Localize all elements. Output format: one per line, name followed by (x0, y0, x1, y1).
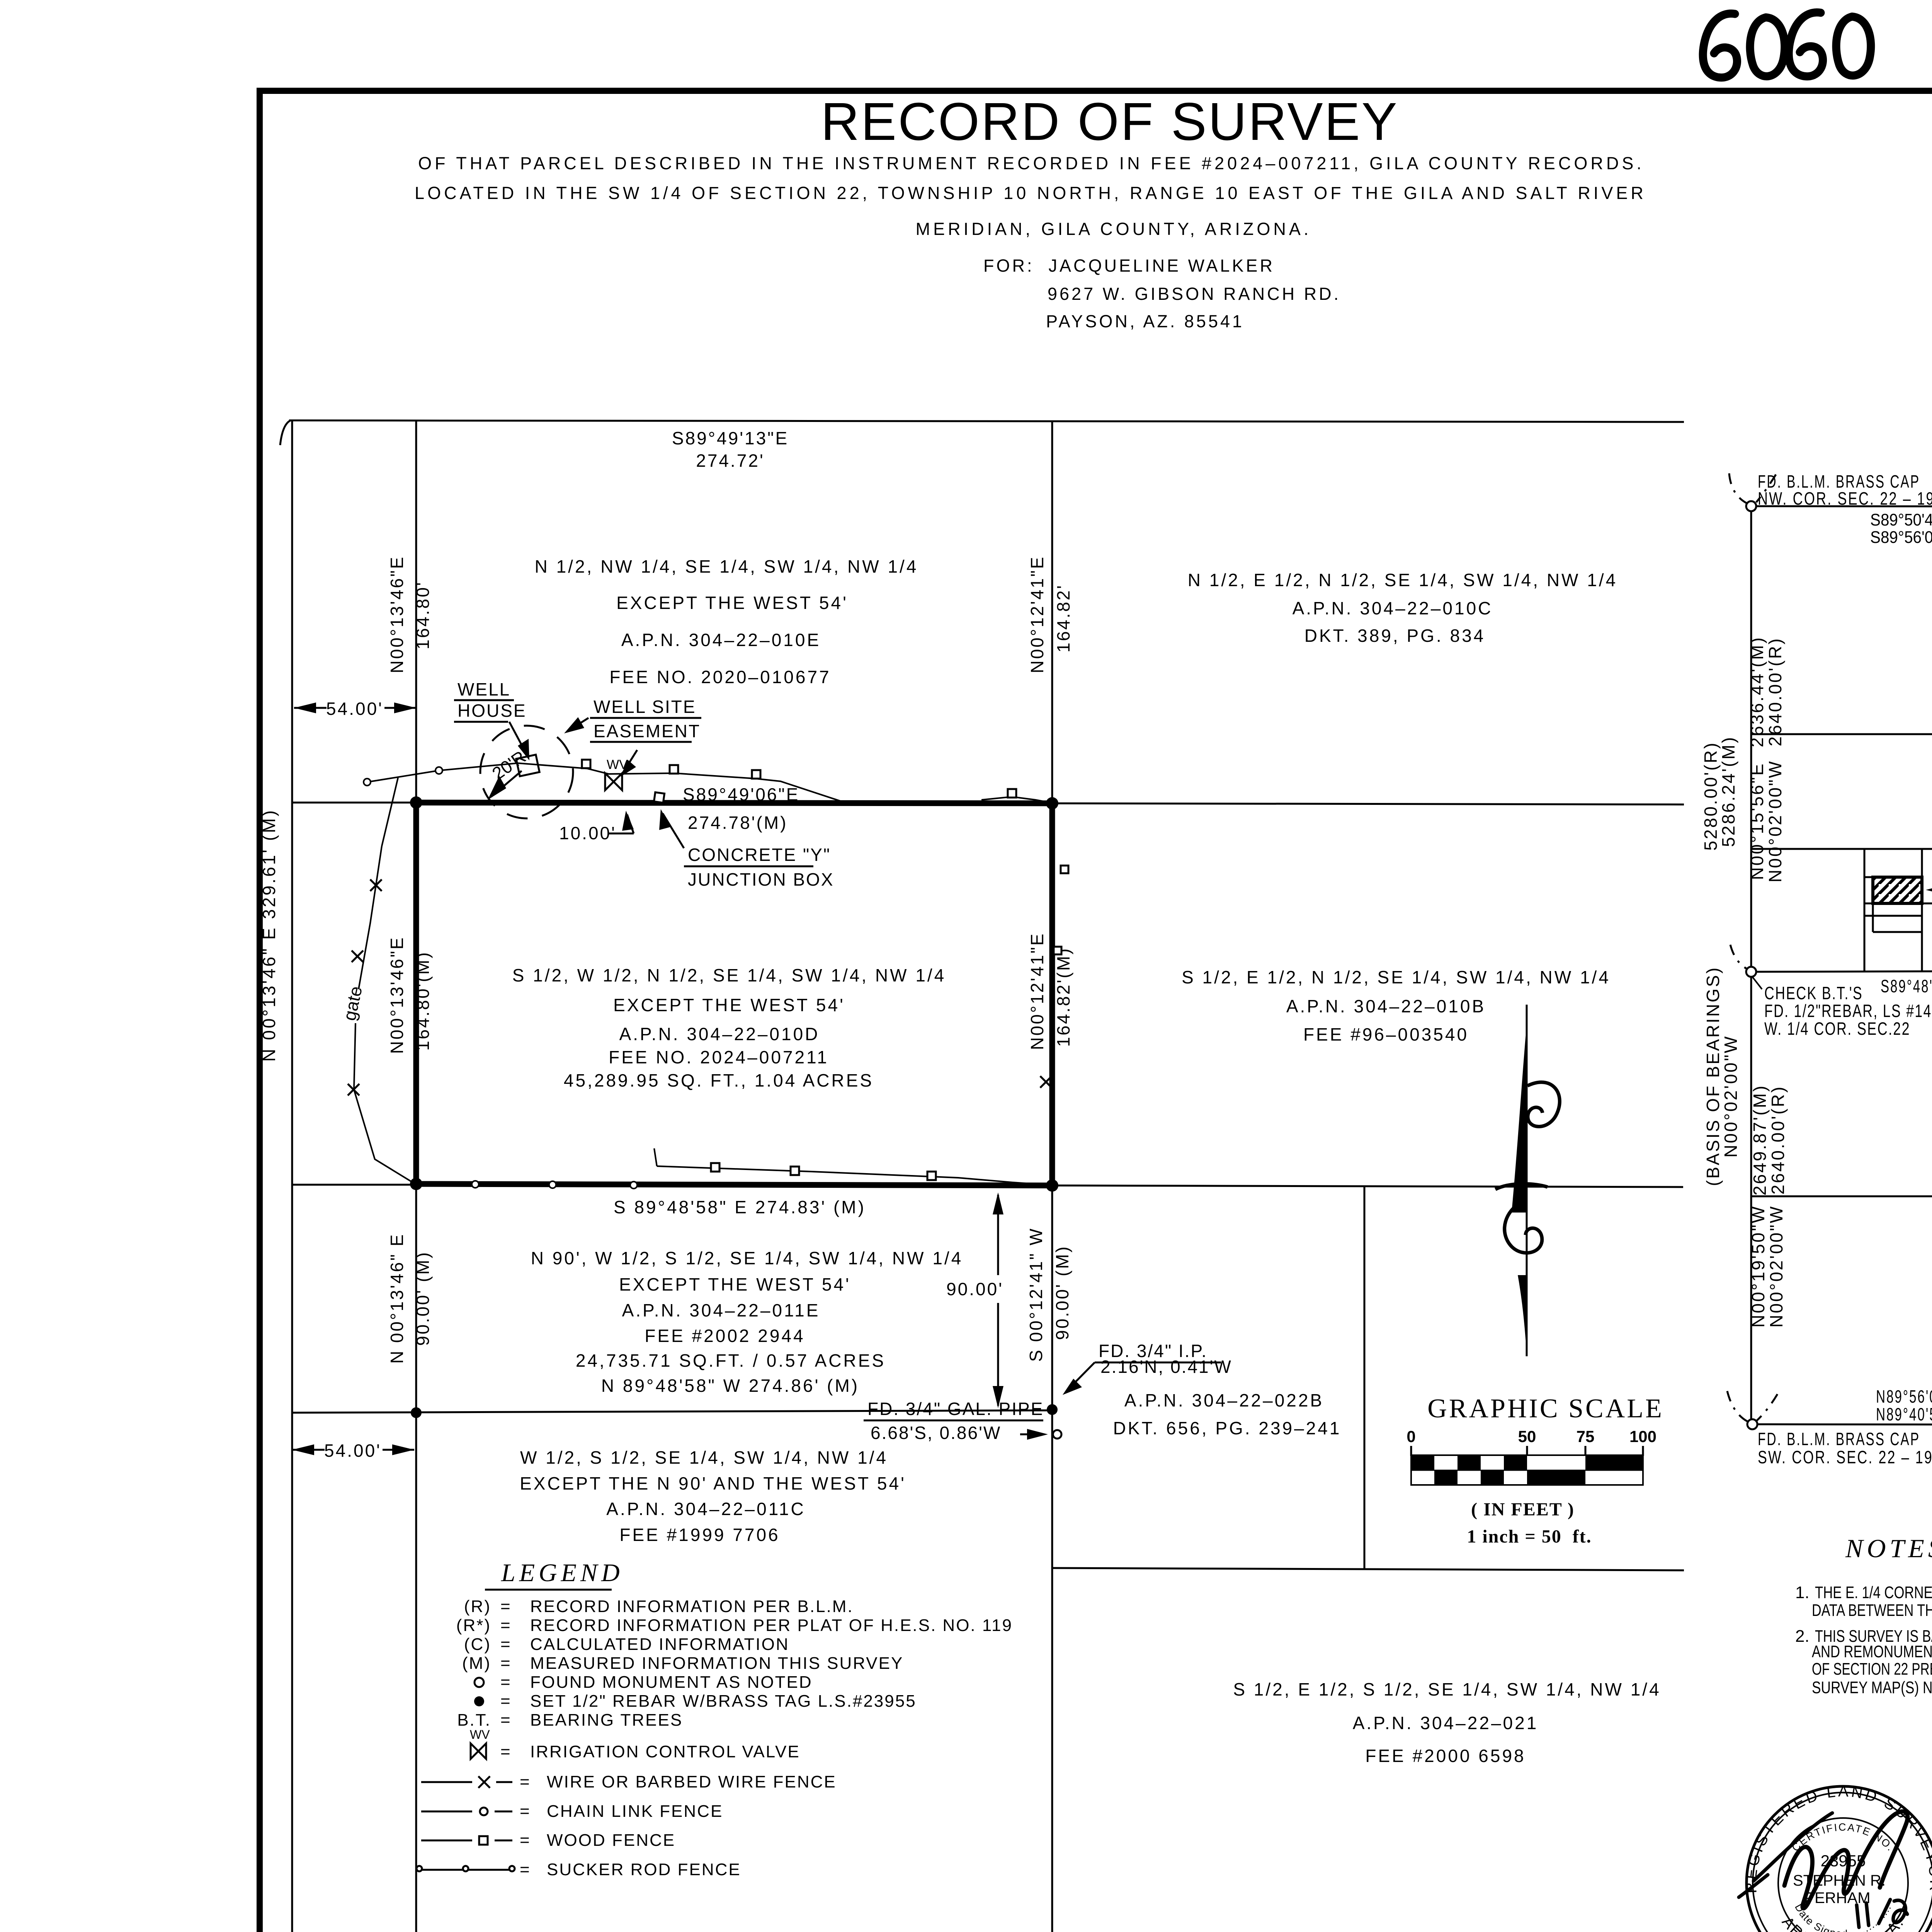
svg-text:SURVEY MAP(S) NO. 1518 & 1526: SURVEY MAP(S) NO. 1518 & 1526 BY EVART D… (1812, 1678, 1932, 1697)
svg-text:=: = (500, 1673, 512, 1692)
svg-text:N 00°13'46" E: N 00°13'46" E (387, 1233, 407, 1364)
svg-text:S89°49'06"E: S89°49'06"E (683, 784, 799, 804)
svg-text:WELL: WELL (457, 679, 510, 699)
svg-text:RECORD INFORMATION PER PLAT OF: RECORD INFORMATION PER PLAT OF H.E.S. NO… (530, 1616, 1013, 1635)
svg-text:S89°48'42"E: S89°48'42"E (1881, 976, 1932, 996)
svg-text:S 00°12'41" W: S 00°12'41" W (1026, 1227, 1046, 1362)
svg-text:54.00': 54.00' (324, 1440, 381, 1461)
svg-text:5280.00'(R): 5280.00'(R) (1701, 742, 1721, 851)
svg-text:OF THAT PARCEL DESCRIBED IN TH: OF THAT PARCEL DESCRIBED IN THE INSTRUME… (418, 153, 1645, 173)
svg-text:S 1/2, E 1/2, N 1/2, SE 1/4, S: S 1/2, E 1/2, N 1/2, SE 1/4, SW 1/4, NW … (1182, 967, 1611, 987)
svg-text:90.00' (M): 90.00' (M) (413, 1251, 433, 1346)
svg-text:N00°02'00"W: N00°02'00"W (1766, 1205, 1786, 1328)
svg-text:WV: WV (470, 1728, 490, 1742)
svg-text:A.P.N. 304–22–011E: A.P.N. 304–22–011E (622, 1300, 820, 1320)
svg-text:JUNCTION BOX: JUNCTION BOX (688, 869, 834, 889)
svg-text:GRAPHIC SCALE: GRAPHIC SCALE (1427, 1394, 1663, 1423)
svg-text:FEE NO. 2020–010677: FEE NO. 2020–010677 (609, 667, 831, 687)
svg-text:W. 1/4 COR. SEC.22: W. 1/4 COR. SEC.22 (1764, 1019, 1910, 1039)
svg-text:EXCEPT THE WEST 54': EXCEPT THE WEST 54' (619, 1274, 851, 1294)
svg-text:S89°56'00"E: S89°56'00"E (1870, 528, 1932, 547)
svg-text:2.: 2. (1795, 1627, 1810, 1646)
svg-text:A.P.N. 304–22–011C: A.P.N. 304–22–011C (606, 1499, 805, 1519)
svg-text:N00°19'50"W: N00°19'50"W (1748, 1205, 1768, 1328)
svg-text:164.80': 164.80' (413, 581, 433, 649)
svg-text:N00°02'00"W: N00°02'00"W (1765, 760, 1785, 883)
svg-text:=: = (500, 1597, 512, 1616)
svg-text:RECORD OF SURVEY: RECORD OF SURVEY (821, 92, 1398, 151)
svg-text:N 89°48'58" W 274.86' (M): N 89°48'58" W 274.86' (M) (601, 1376, 859, 1396)
svg-text:FD. 1/2"REBAR, LS #14169: FD. 1/2"REBAR, LS #14169 (1764, 1001, 1932, 1021)
svg-text:90.00' (M): 90.00' (M) (1052, 1245, 1072, 1340)
svg-text:100: 100 (1629, 1427, 1656, 1446)
svg-text:EXCEPT THE N 90' AND THE WEST: EXCEPT THE N 90' AND THE WEST 54' (520, 1473, 906, 1493)
svg-text:2640.00'(R): 2640.00'(R) (1765, 637, 1785, 747)
svg-text:=: = (500, 1692, 512, 1711)
svg-text:N00°12'41"E: N00°12'41"E (1027, 556, 1047, 673)
svg-text:CHAIN LINK FENCE: CHAIN LINK FENCE (547, 1802, 723, 1821)
svg-text:=: = (520, 1772, 531, 1791)
svg-text:OF SECTION 22 PREPARED BY GITT: OF SECTION 22 PREPARED BY GITTNER LOUVIE… (1812, 1660, 1932, 1679)
svg-text:FEE #2000 6598: FEE #2000 6598 (1365, 1746, 1526, 1766)
svg-text:B.T.: B.T. (457, 1711, 491, 1730)
svg-text:75: 75 (1577, 1427, 1595, 1446)
svg-text:N 90', W 1/2, S 1/2, SE 1/4, S: N 90', W 1/2, S 1/2, SE 1/4, SW 1/4, NW … (531, 1248, 963, 1268)
svg-text:2640.00'(R): 2640.00'(R) (1768, 1085, 1788, 1195)
svg-text:THE E. 1/4 CORNER WAS ESTABLIS: THE E. 1/4 CORNER WAS ESTABLISHED BY THE… (1815, 1583, 1932, 1602)
svg-text:SW. COR. SEC. 22 – 1968: SW. COR. SEC. 22 – 1968 (1758, 1447, 1932, 1467)
svg-text:5286.24'(M): 5286.24'(M) (1718, 736, 1738, 847)
svg-text:=: = (520, 1802, 531, 1821)
svg-text:LOCATED IN THE SW 1/4 OF SECTI: LOCATED IN THE SW 1/4 OF SECTION 22, TOW… (415, 183, 1646, 203)
svg-text:164.82': 164.82' (1053, 584, 1073, 652)
svg-text:S 1/2, W 1/2, N 1/2, SE 1/4, S: S 1/2, W 1/2, N 1/2, SE 1/4, SW 1/4, NW … (512, 965, 946, 985)
svg-text:S 1/2, E 1/2, S 1/2, SE 1/4, S: S 1/2, E 1/2, S 1/2, SE 1/4, SW 1/4, NW … (1233, 1679, 1661, 1699)
svg-text:EXCEPT THE WEST 54': EXCEPT THE WEST 54' (616, 593, 848, 613)
svg-text:N00°13'46"E: N00°13'46"E (387, 556, 407, 673)
svg-text:S 89°48'58" E 274.83' (M): S 89°48'58" E 274.83' (M) (614, 1197, 866, 1217)
svg-text:MEASURED INFORMATION THIS SURV: MEASURED INFORMATION THIS SURVEY (530, 1654, 903, 1673)
svg-text:BEARING TREES: BEARING TREES (530, 1711, 683, 1730)
svg-text:24,735.71 SQ.FT. / 0.57 ACRES: 24,735.71 SQ.FT. / 0.57 ACRES (576, 1350, 886, 1371)
svg-text:( IN FEET ): ( IN FEET ) (1471, 1499, 1575, 1520)
svg-text:FEE #96–003540: FEE #96–003540 (1303, 1024, 1469, 1044)
svg-text:EASEMENT: EASEMENT (594, 721, 701, 741)
svg-text:=: = (520, 1860, 531, 1879)
svg-text:(R): (R) (464, 1597, 491, 1616)
svg-text:50: 50 (1518, 1427, 1536, 1446)
svg-text:WIRE OR BARBED WIRE FENCE: WIRE OR BARBED WIRE FENCE (547, 1772, 837, 1791)
svg-text:2649.87'(M): 2649.87'(M) (1750, 1084, 1770, 1196)
svg-text:1 inch = 50 ft.: 1 inch = 50 ft. (1467, 1526, 1592, 1547)
svg-text:274.78'(M): 274.78'(M) (688, 813, 787, 833)
svg-text:N00°15'56"E: N00°15'56"E (1747, 762, 1767, 880)
svg-text:W 1/2, S 1/2, SE 1/4, SW 1/4,: W 1/2, S 1/2, SE 1/4, SW 1/4, NW 1/4 (520, 1447, 888, 1468)
svg-text:NOTES:: NOTES: (1845, 1534, 1932, 1563)
svg-text:FD. B.L.M. BRASS CAP: FD. B.L.M. BRASS CAP (1758, 1429, 1920, 1449)
svg-text:(M): (M) (462, 1654, 491, 1673)
svg-text:(R*): (R*) (456, 1616, 491, 1635)
svg-text:274.72': 274.72' (696, 451, 764, 471)
svg-text:=: = (500, 1742, 512, 1761)
svg-text:N 1/2, E 1/2, N 1/2, SE 1/4, S: N 1/2, E 1/2, N 1/2, SE 1/4, SW 1/4, NW … (1188, 570, 1617, 590)
svg-text:N89°56'00"W: N89°56'00"W (1876, 1386, 1932, 1406)
svg-text:FOR: JACQUELINE WALKER: FOR: JACQUELINE WALKER (983, 256, 1275, 276)
svg-text:DATA BETWEEN THE NE & SE CORNE: DATA BETWEEN THE NE & SE CORNERS OF SECT… (1812, 1601, 1932, 1620)
svg-text:FEE #2002 2944: FEE #2002 2944 (645, 1326, 805, 1346)
svg-text:CHECK B.T.'S: CHECK B.T.'S (1764, 983, 1863, 1003)
svg-text:SUCKER ROD FENCE: SUCKER ROD FENCE (547, 1860, 741, 1879)
svg-text:A.P.N. 304–22–021: A.P.N. 304–22–021 (1353, 1713, 1539, 1733)
svg-text:AND REMONUMENTATION FIELD NOTE: AND REMONUMENTATION FIELD NOTES, DATED A… (1812, 1642, 1932, 1661)
svg-text:CONCRETE "Y": CONCRETE "Y" (688, 845, 831, 865)
svg-text:9627 W. GIBSON RANCH RD.: 9627 W. GIBSON RANCH RD. (1048, 284, 1341, 304)
svg-text:=: = (500, 1616, 512, 1635)
svg-text:FD. 3/4" GAL. PIPE: FD. 3/4" GAL. PIPE (867, 1399, 1044, 1419)
svg-text:CALCULATED INFORMATION: CALCULATED INFORMATION (530, 1635, 789, 1654)
svg-text:WELL SITE: WELL SITE (594, 697, 696, 717)
svg-text:164.80'(M): 164.80'(M) (413, 951, 433, 1051)
svg-text:=: = (500, 1635, 512, 1654)
svg-text:LEGEND: LEGEND (501, 1559, 624, 1587)
svg-text:FOUND MONUMENT AS NOTED: FOUND MONUMENT AS NOTED (530, 1673, 813, 1692)
svg-text:EXCEPT THE WEST 54': EXCEPT THE WEST 54' (613, 995, 845, 1015)
svg-text:NW. COR. SEC. 22 – 1968: NW. COR. SEC. 22 – 1968 (1758, 488, 1932, 509)
svg-text:N00°13'46"E: N00°13'46"E (387, 936, 407, 1054)
svg-text:WOOD FENCE: WOOD FENCE (547, 1831, 675, 1850)
svg-text:164.82'(M): 164.82'(M) (1053, 947, 1073, 1047)
svg-text:A.P.N. 304–22–022B: A.P.N. 304–22–022B (1124, 1390, 1324, 1410)
svg-text:HOUSE: HOUSE (457, 701, 527, 721)
svg-text:A.P.N. 304–22–010B: A.P.N. 304–22–010B (1286, 996, 1486, 1016)
svg-text:=: = (500, 1711, 512, 1730)
svg-text:A.P.N. 304–22–010D: A.P.N. 304–22–010D (619, 1024, 820, 1044)
svg-text:N89°40'56"W: N89°40'56"W (1876, 1404, 1932, 1424)
svg-text:1.: 1. (1795, 1583, 1810, 1602)
svg-text:N00°02'00"W: N00°02'00"W (1721, 1035, 1741, 1158)
svg-text:54.00': 54.00' (326, 699, 383, 719)
svg-text:PAYSON, AZ. 85541: PAYSON, AZ. 85541 (1046, 311, 1244, 331)
svg-text:90.00': 90.00' (946, 1279, 1003, 1299)
svg-text:(C): (C) (464, 1635, 491, 1654)
svg-text:2636.44'(M): 2636.44'(M) (1747, 636, 1767, 747)
svg-text:S89°50'49"E: S89°50'49"E (1870, 510, 1932, 529)
svg-text:45,289.95 SQ. FT., 1.04 ACRES: 45,289.95 SQ. FT., 1.04 ACRES (564, 1070, 874, 1090)
svg-text:6.68'S, 0.86'W: 6.68'S, 0.86'W (871, 1423, 1001, 1443)
svg-text:2.16'N, 0.41'W: 2.16'N, 0.41'W (1100, 1357, 1232, 1377)
svg-text:A.P.N. 304–22–010E: A.P.N. 304–22–010E (621, 630, 821, 650)
svg-text:RECORD INFORMATION PER B.L.M.: RECORD INFORMATION PER B.L.M. (530, 1597, 854, 1616)
svg-text:(BASIS OF BEARINGS): (BASIS OF BEARINGS) (1703, 966, 1723, 1186)
svg-text:FEE NO. 2024–007211: FEE NO. 2024–007211 (609, 1047, 829, 1067)
svg-text:N 1/2, NW 1/4, SE 1/4, SW 1/4,: N 1/2, NW 1/4, SE 1/4, SW 1/4, NW 1/4 (535, 556, 918, 577)
svg-text:FEE #1999 7706: FEE #1999 7706 (619, 1525, 780, 1545)
svg-text:N00°12'41"E: N00°12'41"E (1027, 932, 1047, 1050)
svg-text:=: = (500, 1654, 512, 1673)
svg-text:N 00°13'46" E 329.61' (M): N 00°13'46" E 329.61' (M) (259, 808, 279, 1061)
svg-text:A.P.N. 304–22–010C: A.P.N. 304–22–010C (1293, 598, 1493, 618)
svg-text:S89°49'13"E: S89°49'13"E (672, 428, 789, 448)
svg-text:=: = (520, 1831, 531, 1850)
svg-text:IRRIGATION CONTROL VALVE: IRRIGATION CONTROL VALVE (530, 1742, 800, 1761)
svg-text:10.00': 10.00' (559, 823, 616, 843)
svg-text:DKT. 389, PG. 834: DKT. 389, PG. 834 (1304, 626, 1486, 646)
svg-text:0: 0 (1406, 1427, 1415, 1446)
svg-text:MERIDIAN, GILA COUNTY, ARIZONA: MERIDIAN, GILA COUNTY, ARIZONA. (916, 219, 1312, 239)
svg-text:SET 1/2" REBAR W/BRASS TAG L.S: SET 1/2" REBAR W/BRASS TAG L.S.#23955 (530, 1692, 917, 1711)
svg-text:DKT. 656, PG. 239–241: DKT. 656, PG. 239–241 (1113, 1418, 1342, 1438)
